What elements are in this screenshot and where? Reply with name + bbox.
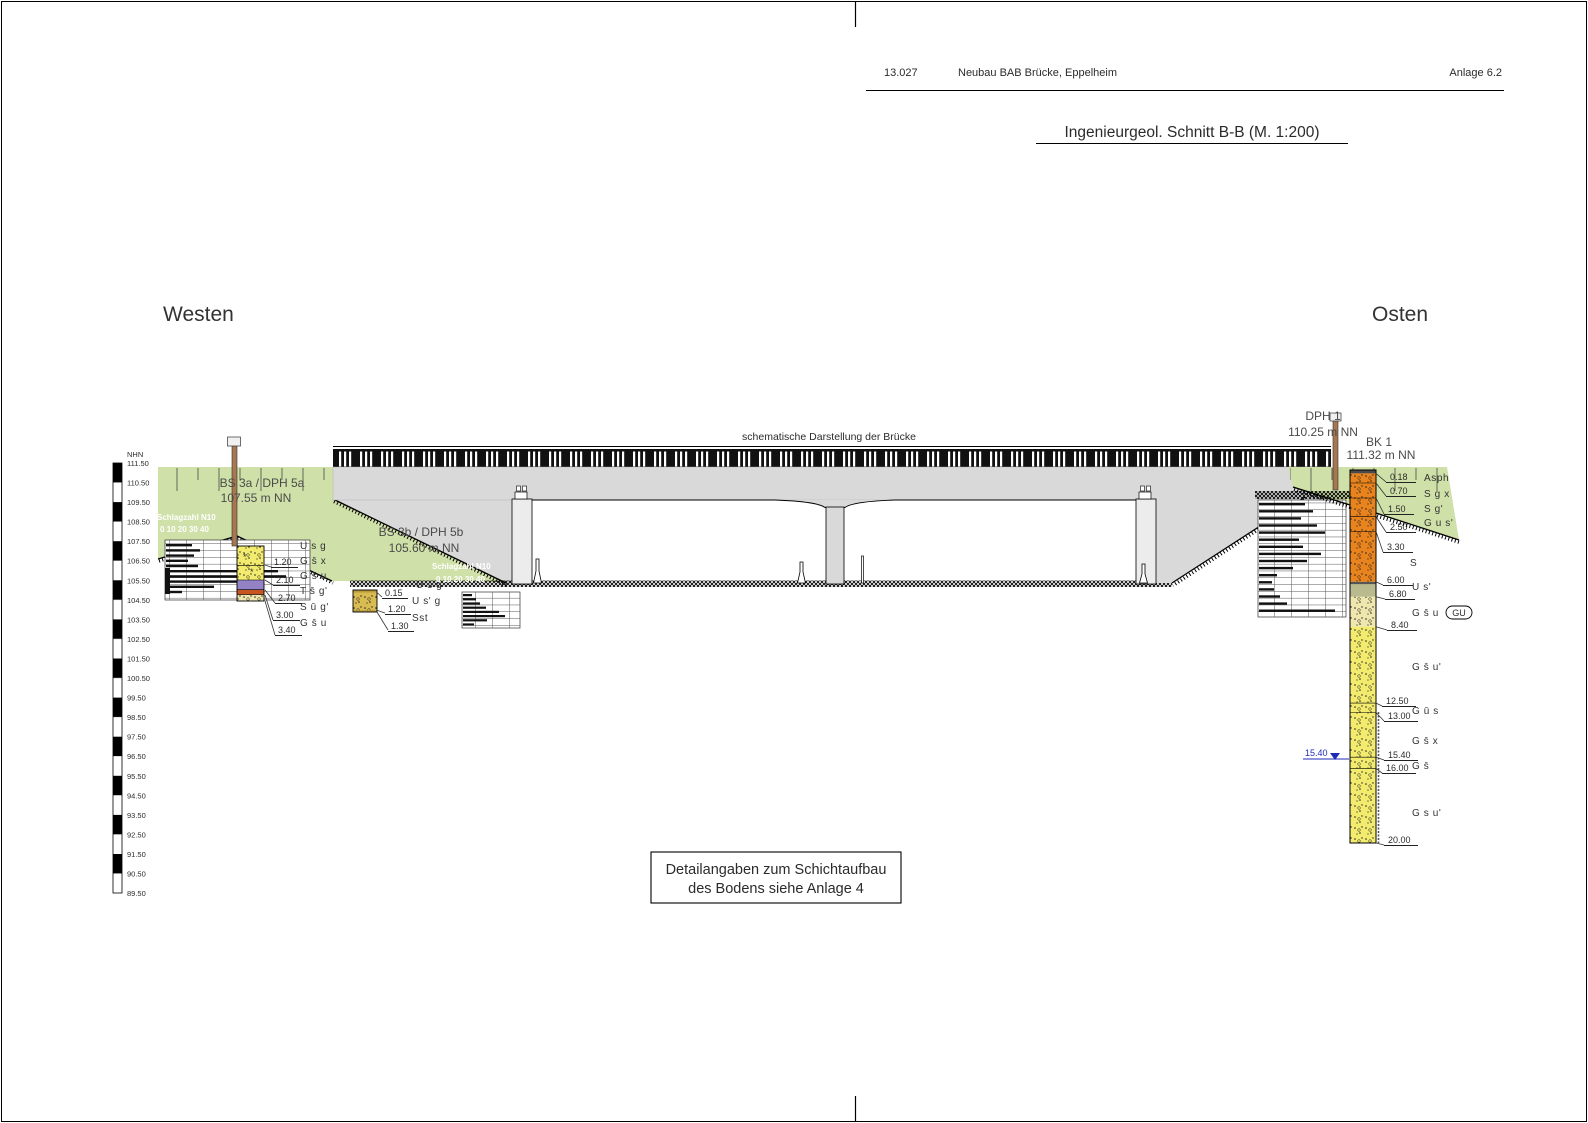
- svg-text:15.40: 15.40: [1305, 748, 1328, 758]
- bk1-name: BK 1: [1366, 435, 1392, 449]
- east-bearing-pad-1: [1141, 486, 1145, 491]
- note-line1: Detailangaben zum Schichtaufbau: [666, 862, 887, 878]
- engineering-section-drawing: 13.027 Neubau BAB Brücke, Eppelheim Anla…: [0, 0, 1588, 1123]
- svg-text:G s̄ u: G s̄ u: [300, 618, 327, 629]
- svg-text:3.40: 3.40: [278, 625, 296, 635]
- svg-text:U s' g: U s' g: [412, 596, 441, 607]
- svg-text:95.50: 95.50: [127, 772, 146, 781]
- bk1-gu-tag: GU: [1452, 608, 1466, 618]
- west-bearing: [515, 492, 527, 499]
- svg-text:105.50: 105.50: [127, 576, 150, 585]
- bs3a-name: BS 3a / DPH 5a: [220, 476, 305, 490]
- svg-text:89.50: 89.50: [127, 889, 146, 898]
- svg-text:1.30: 1.30: [391, 621, 409, 631]
- svg-text:100.50: 100.50: [127, 674, 150, 683]
- east-bearing-pad-2: [1147, 486, 1151, 491]
- svg-text:96.50: 96.50: [127, 752, 146, 761]
- annex-label: Anlage 6.2: [1449, 67, 1502, 79]
- elevation-scale-unit: NHN: [127, 450, 143, 459]
- svg-text:12.50: 12.50: [1386, 696, 1409, 706]
- project-number: 13.027: [884, 67, 918, 79]
- east-bearing: [1139, 492, 1151, 499]
- svg-text:Sst: Sst: [412, 613, 428, 624]
- svg-text:109.50: 109.50: [127, 498, 150, 507]
- svg-text:99.50: 99.50: [127, 694, 146, 703]
- svg-text:1.20: 1.20: [274, 557, 292, 567]
- center-pier: [826, 507, 844, 584]
- west-abutment-wall: [512, 499, 532, 584]
- svg-text:8.40: 8.40: [1391, 620, 1409, 630]
- svg-text:103.50: 103.50: [127, 615, 150, 624]
- dph1-name: DPH 1: [1305, 409, 1341, 423]
- svg-text:106.50: 106.50: [127, 557, 150, 566]
- svg-text:93.50: 93.50: [127, 811, 146, 820]
- svg-text:1.50: 1.50: [1388, 504, 1406, 514]
- clearance-pole: [862, 556, 864, 583]
- svg-text:0.15: 0.15: [385, 588, 403, 598]
- svg-text:G u s': G u s': [1424, 518, 1453, 529]
- svg-text:110.50: 110.50: [127, 479, 149, 488]
- svg-text:6.00: 6.00: [1387, 575, 1405, 585]
- drawing-title: Ingenieurgeol. Schnitt B-B (M. 1:200): [1064, 124, 1319, 141]
- svg-text:G s u': G s u': [1412, 808, 1441, 819]
- svg-text:3.00: 3.00: [276, 610, 294, 620]
- bridge-caption: schematische Darstellung der Brücke: [742, 431, 916, 443]
- east-road-band: [1255, 491, 1352, 499]
- dph5b-axis-line2: 0 10 20 30 40: [436, 575, 485, 584]
- dph3a-axis-line2: 0 10 20 30 40: [160, 525, 209, 534]
- svg-text:13.00: 13.00: [1388, 711, 1411, 721]
- svg-text:20.00: 20.00: [1388, 835, 1411, 845]
- svg-text:91.50: 91.50: [127, 850, 146, 859]
- svg-text:98.50: 98.50: [127, 713, 146, 722]
- svg-text:S: S: [1410, 558, 1417, 569]
- svg-text:S g x: S g x: [1424, 489, 1450, 500]
- svg-text:G s̄ x: G s̄ x: [300, 556, 326, 567]
- svg-text:3.30: 3.30: [1387, 542, 1405, 552]
- svg-text:107.50: 107.50: [127, 537, 150, 546]
- bs3a-elevation: 107.55 m NN: [221, 491, 292, 505]
- svg-text:U s g: U s g: [300, 541, 326, 552]
- west-bearing-pad-1: [517, 486, 521, 491]
- svg-text:102.50: 102.50: [127, 635, 150, 644]
- svg-text:G s̄ u: G s̄ u: [300, 571, 327, 582]
- svg-text:G s̄: G s̄: [1412, 761, 1429, 772]
- dph1-diagram: [1258, 500, 1346, 617]
- svg-text:S g': S g': [1424, 504, 1443, 515]
- west-label: Westen: [163, 303, 234, 326]
- svg-text:108.50: 108.50: [127, 518, 150, 527]
- svg-text:U s': U s': [1412, 582, 1431, 593]
- bridge-railing: [333, 449, 1331, 467]
- svg-text:15.40: 15.40: [1388, 750, 1411, 760]
- svg-text:*: *: [250, 567, 254, 577]
- svg-text:G s̄ u: G s̄ u: [1412, 608, 1439, 619]
- dph3a-axis-line1: Schlagzahl N10: [157, 513, 216, 522]
- svg-text:111.50: 111.50: [127, 459, 149, 468]
- elevation-scale-bar: [113, 463, 122, 893]
- dph3a-rod-cap: [228, 437, 241, 446]
- svg-text:94.50: 94.50: [127, 791, 146, 800]
- svg-text:0.70: 0.70: [1390, 486, 1408, 496]
- svg-text:G ū s: G ū s: [1412, 706, 1439, 717]
- svg-text:0.18: 0.18: [1390, 472, 1408, 482]
- svg-text:97.50: 97.50: [127, 733, 146, 742]
- note-line2: des Bodens siehe Anlage 4: [688, 881, 864, 897]
- svg-text:G s̄ u': G s̄ u': [1412, 662, 1441, 673]
- bs3b-elevation: 105.60 m NN: [389, 541, 460, 555]
- bk1-elevation: 111.32 m NN: [1347, 448, 1416, 462]
- svg-text:104.50: 104.50: [127, 596, 150, 605]
- east-abutment-wall: [1136, 499, 1156, 584]
- svg-text:*: *: [243, 552, 247, 562]
- dph5b-diagram: [462, 592, 520, 628]
- svg-text:Asph: Asph: [1424, 473, 1449, 484]
- svg-text:6.80: 6.80: [1389, 589, 1407, 599]
- svg-text:16.00: 16.00: [1386, 763, 1409, 773]
- svg-text:G s̄ x: G s̄ x: [1412, 736, 1438, 747]
- svg-text:92.50: 92.50: [127, 830, 146, 839]
- bs3a-borehole: * *: [237, 546, 264, 601]
- east-label: Osten: [1372, 303, 1428, 326]
- svg-text:S ū g': S ū g': [300, 602, 329, 613]
- svg-text:2.50: 2.50: [1390, 522, 1408, 532]
- svg-text:101.50: 101.50: [127, 655, 150, 664]
- bs3b-borehole: [353, 590, 377, 612]
- svg-text:90.50: 90.50: [127, 870, 146, 879]
- dph1-elevation: 110.25 m NN: [1288, 425, 1358, 439]
- svg-text:2.10: 2.10: [276, 575, 294, 585]
- dph5b-axis-line1: Schlagzahl N10: [432, 562, 491, 571]
- bs3b-name: BS 3b / DPH 5b: [379, 525, 464, 539]
- svg-text:2.70: 2.70: [278, 593, 296, 603]
- svg-text:U s g: U s g: [416, 580, 442, 591]
- bk1-borehole: [1350, 470, 1379, 843]
- west-bearing-pad-2: [523, 486, 527, 491]
- svg-text:T s̄ g': T s̄ g': [300, 586, 328, 597]
- project-title: Neubau BAB Brücke, Eppelheim: [958, 67, 1117, 79]
- svg-text:1.20: 1.20: [388, 604, 406, 614]
